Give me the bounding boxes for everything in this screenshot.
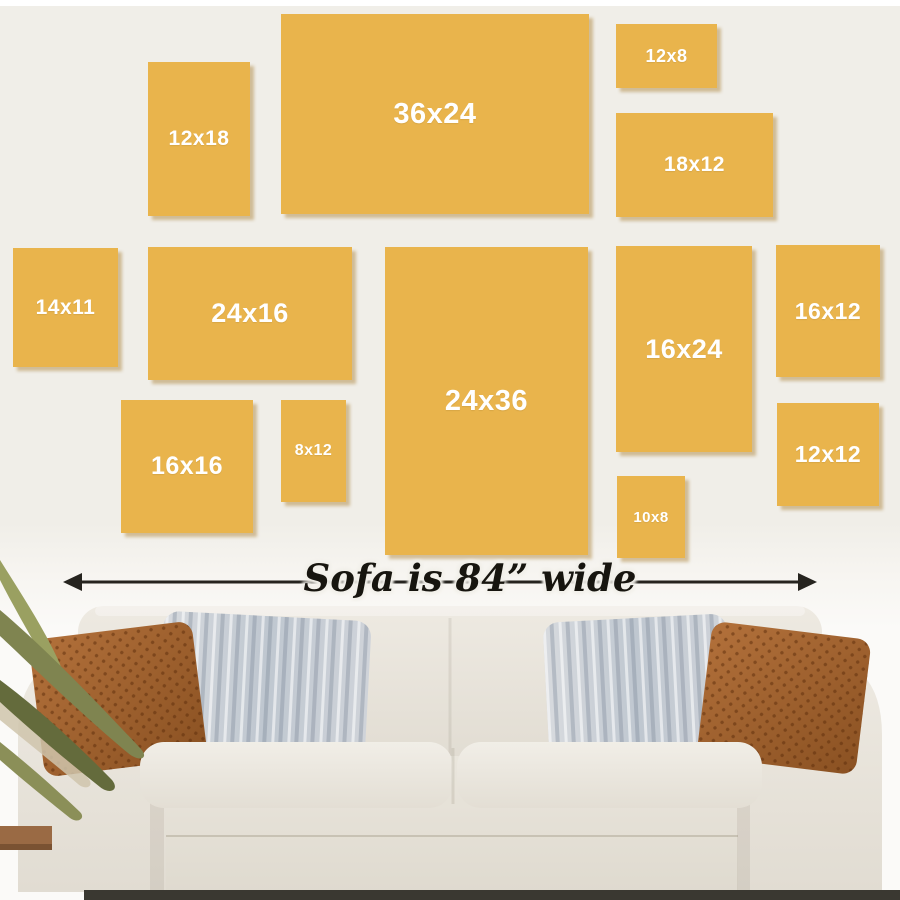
sofa-photo: [0, 0, 900, 900]
floor-shadow: [84, 890, 900, 900]
size-guide-graphic: 12x1836x2412x818x1214x1124x1624x3616x241…: [0, 0, 900, 900]
planter: [0, 826, 52, 850]
